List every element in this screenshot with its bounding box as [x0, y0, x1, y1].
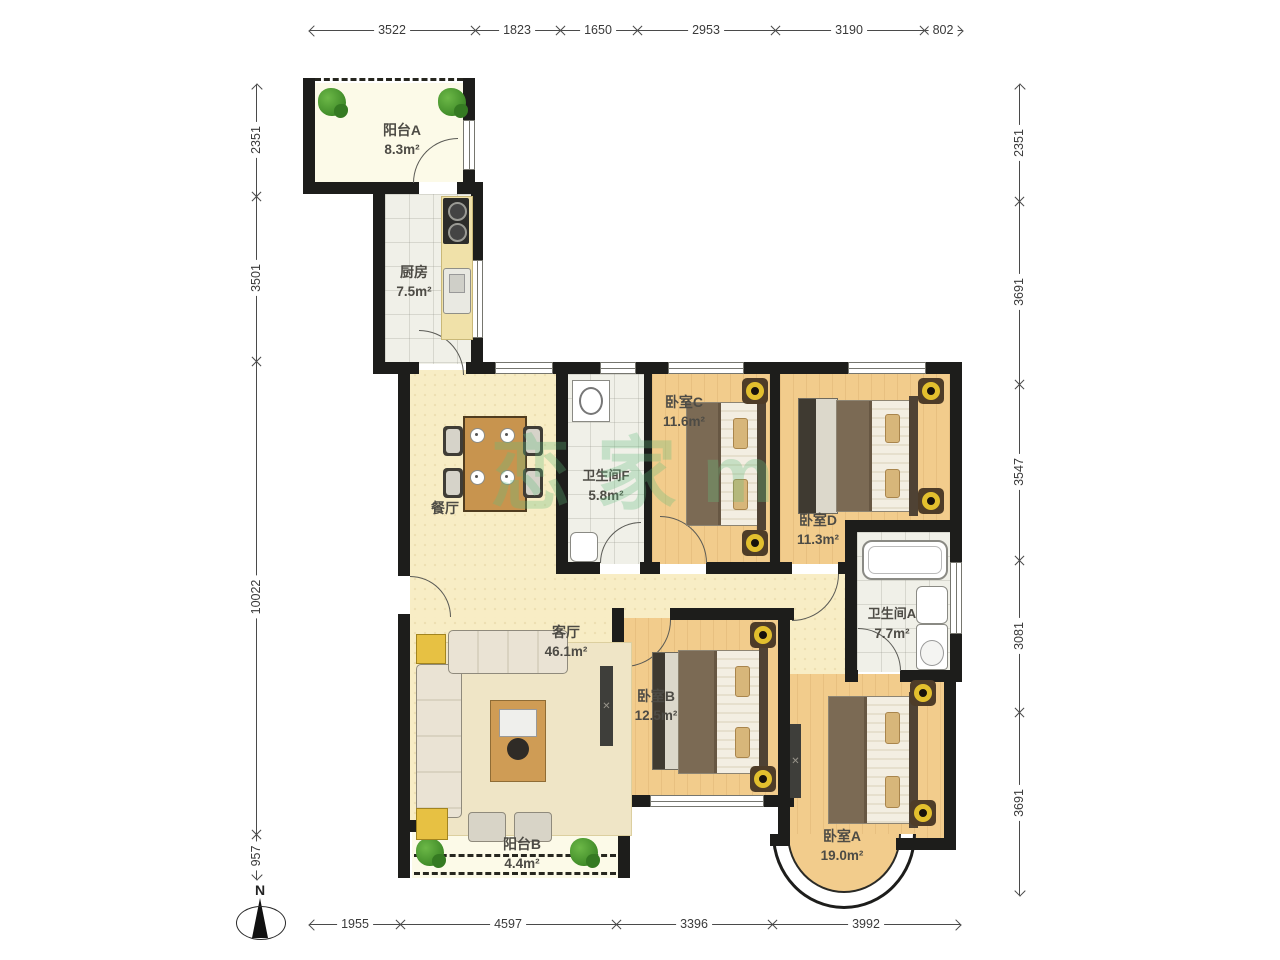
- nightstand-icon: [910, 800, 936, 826]
- room-bed-d-label: 卧室D11.3m²: [797, 510, 839, 550]
- plant-icon: [570, 838, 598, 866]
- room-dining-label: 餐厅: [431, 498, 459, 518]
- north-label: N: [255, 882, 265, 898]
- room-bed-a-label: 卧室A19.0m²: [821, 826, 864, 866]
- wardrobe-icon: [798, 398, 838, 514]
- dim-tick: [631, 24, 644, 37]
- arrow-up-icon: [1014, 83, 1025, 94]
- wall-segment: [845, 520, 952, 532]
- arrow-left-icon: [308, 919, 319, 930]
- wall-segment: [770, 834, 790, 846]
- dim-tick: [1013, 195, 1026, 208]
- dim-right-label-2: 3547: [1012, 454, 1026, 490]
- compass-circle: [236, 906, 286, 940]
- tv-icon: [790, 724, 801, 798]
- dim-tick: [766, 918, 779, 931]
- floorplan-canvas: 3522 1823 1650 2953 3190 802 2351 3501 1…: [0, 0, 1280, 960]
- nightstand-icon: [750, 766, 776, 792]
- window: [463, 120, 475, 170]
- dim-tick: [610, 918, 623, 931]
- room-balcony-a-label: 阳台A8.3m²: [383, 120, 421, 160]
- dim-bottom-label-1: 4597: [490, 917, 526, 931]
- watermark: 恋家m: [490, 410, 799, 526]
- window: [600, 362, 636, 374]
- dim-tick: [250, 828, 263, 841]
- dim-tick: [769, 24, 782, 37]
- arrow-right-icon: [950, 919, 961, 930]
- plate-icon: [470, 428, 485, 443]
- dim-top-label-2: 1650: [580, 23, 616, 37]
- wall-segment: [778, 608, 790, 674]
- dim-bottom-label-0: 1955: [337, 917, 373, 931]
- dim-left-label-2: 10022: [249, 576, 263, 619]
- bathroom-sink-icon: [570, 532, 598, 562]
- dim-right-label-3: 3081: [1012, 618, 1026, 654]
- dim-tick: [250, 355, 263, 368]
- wall-segment: [373, 194, 385, 374]
- dim-top-label-5: 802: [929, 23, 958, 37]
- chair-icon: [443, 468, 463, 498]
- dim-right-label-0: 2351: [1012, 125, 1026, 161]
- wall-segment: [636, 362, 668, 374]
- dim-bottom-label-2: 3396: [676, 917, 712, 931]
- bed-icon: [678, 650, 760, 774]
- wall-segment: [640, 562, 660, 574]
- dim-ruler-top: 3522 1823 1650 2953 3190 802: [310, 24, 962, 38]
- wall-segment: [950, 362, 962, 562]
- wall-segment: [670, 608, 794, 620]
- chair-icon: [443, 426, 463, 456]
- window: [668, 362, 744, 374]
- dim-tick: [469, 24, 482, 37]
- nightstand-icon: [750, 622, 776, 648]
- dim-top-label-1: 1823: [499, 23, 535, 37]
- nightstand-icon: [742, 378, 768, 404]
- wall-segment: [845, 532, 857, 682]
- window: [650, 795, 764, 807]
- room-living-label: 客厅46.1m²: [545, 622, 588, 662]
- stove-icon: [443, 198, 469, 244]
- wall-segment: [398, 614, 410, 832]
- wall-segment: [706, 562, 792, 574]
- room-bed-b-label: 卧室B12.5m²: [635, 686, 678, 726]
- wall-segment: [896, 838, 956, 850]
- bathtub-icon: [862, 540, 948, 580]
- dim-bottom-label-3: 3992: [848, 917, 884, 931]
- wall-segment: [744, 362, 848, 374]
- tv-icon: [600, 666, 613, 746]
- sofa-icon: [416, 664, 462, 818]
- window: [950, 562, 962, 634]
- dim-ruler-bottom: 1955 4597 3396 3992: [310, 918, 960, 932]
- dim-ruler-right: 2351 3691 3547 3081 3691: [1013, 85, 1027, 895]
- plant-icon: [438, 88, 466, 116]
- room-kitchen-label: 厨房7.5m²: [396, 262, 431, 302]
- bed-icon: [836, 400, 910, 512]
- plant-icon: [318, 88, 346, 116]
- bathroom-sink-icon: [916, 586, 948, 624]
- dim-left-label-0: 2351: [249, 122, 263, 158]
- dim-tick: [1013, 378, 1026, 391]
- nightstand-icon: [742, 530, 768, 556]
- wall-segment: [303, 78, 315, 194]
- coffee-table-icon: [490, 700, 546, 782]
- dim-left-label-1: 3501: [249, 260, 263, 296]
- toilet-icon: [916, 624, 948, 670]
- balcony-a-window-dashed: [315, 78, 463, 81]
- dim-top-label-0: 3522: [374, 23, 410, 37]
- dim-right-label-4: 3691: [1012, 785, 1026, 821]
- wall-segment: [373, 182, 419, 194]
- dim-right-label-1: 3691: [1012, 274, 1026, 310]
- arrow-up-icon: [251, 83, 262, 94]
- ottoman-icon: [468, 812, 506, 842]
- wall-segment: [845, 670, 858, 682]
- nightstand-icon: [910, 680, 936, 706]
- wall-segment: [618, 832, 630, 878]
- dim-tick: [1013, 706, 1026, 719]
- window: [495, 362, 553, 374]
- arrow-left-icon: [308, 25, 319, 36]
- side-table-icon: [416, 808, 448, 840]
- wall-segment: [398, 832, 410, 878]
- wall-segment: [466, 362, 495, 374]
- window: [848, 362, 926, 374]
- wall-segment: [556, 562, 600, 574]
- dim-line: [256, 85, 257, 879]
- arrow-down-icon: [1014, 885, 1025, 896]
- nightstand-icon: [918, 488, 944, 514]
- dim-tick: [250, 190, 263, 203]
- dim-tick: [1013, 554, 1026, 567]
- side-table-icon: [416, 634, 446, 664]
- plant-icon: [416, 838, 444, 866]
- wall-segment: [778, 674, 790, 846]
- dim-tick: [554, 24, 567, 37]
- arrow-down-icon: [251, 869, 262, 880]
- dim-ruler-left: 2351 3501 10022 957: [250, 85, 264, 879]
- kitchen-sink-icon: [443, 268, 471, 314]
- wall-segment: [944, 674, 956, 850]
- wall-segment: [612, 608, 624, 620]
- dim-top-label-3: 2953: [688, 23, 724, 37]
- room-balcony-b-label: 阳台B4.4m²: [503, 834, 541, 874]
- north-compass: N: [232, 882, 288, 952]
- wall-segment: [398, 362, 410, 576]
- dim-top-label-4: 3190: [831, 23, 867, 37]
- room-bath-a-label: 卫生间A7.7m²: [868, 604, 916, 644]
- dim-tick: [394, 918, 407, 931]
- dim-left-label-3: 957: [249, 842, 263, 871]
- bed-icon: [828, 696, 910, 824]
- plate-icon: [470, 470, 485, 485]
- nightstand-icon: [918, 378, 944, 404]
